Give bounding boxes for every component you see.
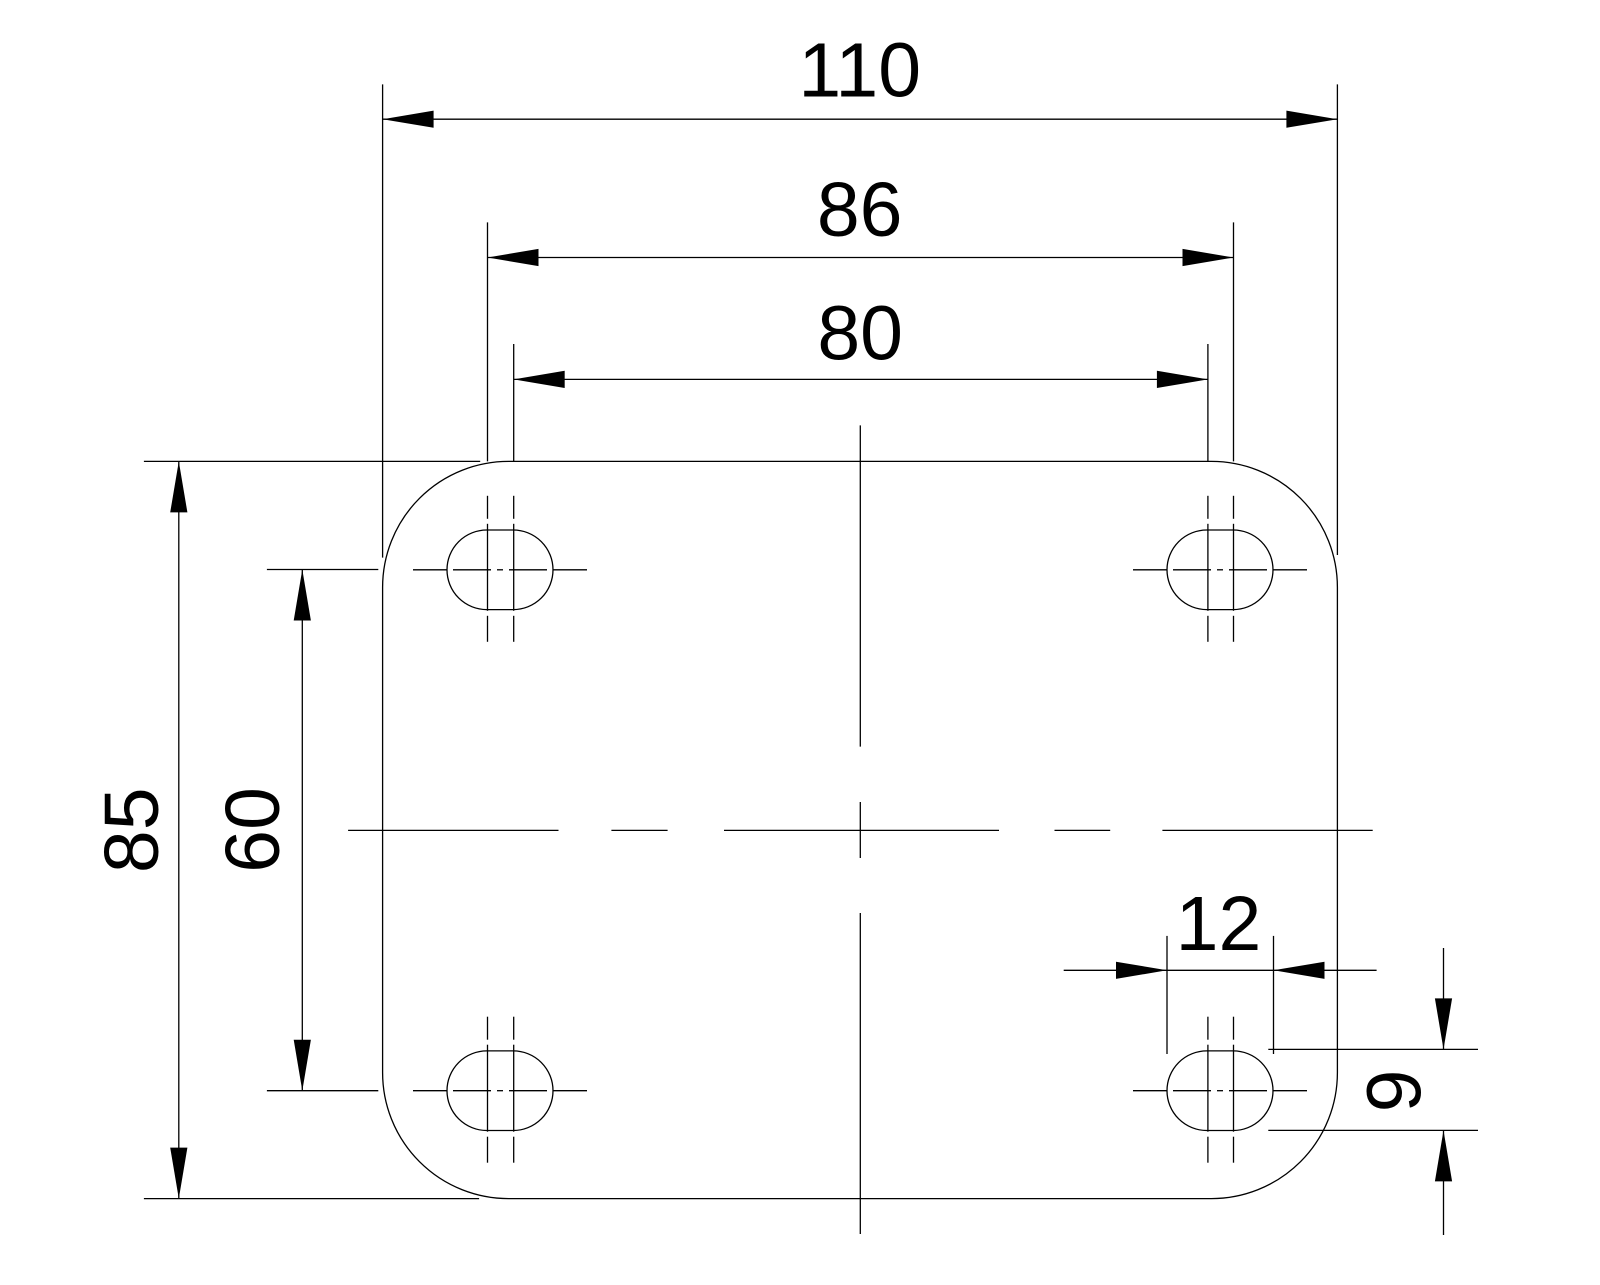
svg-text:9: 9 bbox=[1352, 1070, 1438, 1113]
svg-text:110: 110 bbox=[798, 28, 921, 114]
svg-text:12: 12 bbox=[1176, 881, 1262, 967]
svg-text:86: 86 bbox=[817, 167, 903, 253]
svg-text:85: 85 bbox=[89, 787, 175, 873]
svg-text:60: 60 bbox=[210, 787, 296, 873]
svg-text:80: 80 bbox=[817, 291, 903, 377]
